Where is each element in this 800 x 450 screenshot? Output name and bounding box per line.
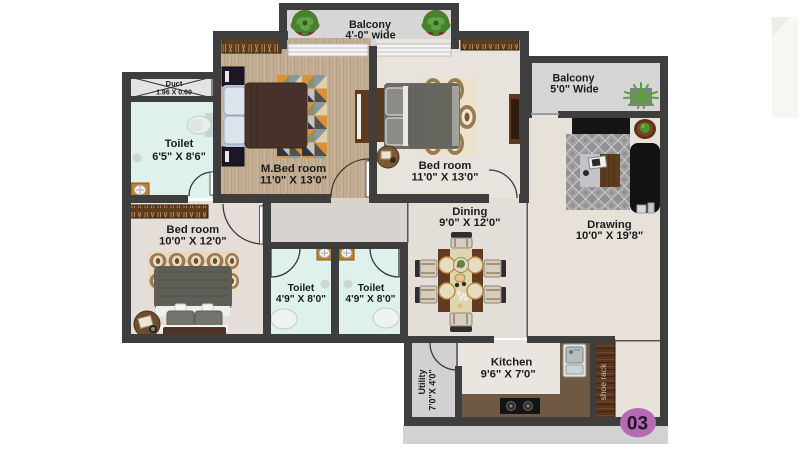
svg-text:9'6" X 7'0": 9'6" X 7'0" [481, 369, 536, 381]
svg-text:4'-0" wide: 4'-0" wide [345, 30, 395, 42]
svg-text:Toilet: Toilet [288, 283, 315, 294]
svg-text:5'0" Wide: 5'0" Wide [550, 83, 598, 95]
svg-text:11'0" X 13'0": 11'0" X 13'0" [260, 175, 327, 187]
svg-text:10'0" X 19'8": 10'0" X 19'8" [576, 230, 644, 242]
svg-text:1.96 X 0.60: 1.96 X 0.60 [156, 90, 192, 97]
svg-text:Toilet: Toilet [358, 283, 385, 294]
svg-text:Kitchen: Kitchen [491, 357, 533, 369]
svg-text:9'0" X 12'0": 9'0" X 12'0" [439, 217, 500, 229]
svg-text:Bed room: Bed room [166, 224, 219, 236]
svg-text:4'9" X 8'0": 4'9" X 8'0" [345, 294, 395, 305]
svg-text:10'0" X 12'0": 10'0" X 12'0" [159, 235, 227, 247]
svg-text:03: 03 [627, 414, 648, 435]
svg-text:Bed room: Bed room [419, 160, 472, 172]
svg-text:Utility: Utility [417, 369, 427, 394]
svg-text:Duct: Duct [166, 79, 183, 88]
svg-text:7'0"X 4'0": 7'0"X 4'0" [428, 369, 438, 410]
svg-text:4'9" X 8'0": 4'9" X 8'0" [276, 294, 326, 305]
svg-text:Toilet: Toilet [165, 138, 194, 150]
svg-text:M.Bed room: M.Bed room [261, 163, 326, 175]
svg-text:shoe rack: shoe rack [598, 363, 608, 401]
svg-text:11'0" X 13'0": 11'0" X 13'0" [412, 172, 479, 184]
svg-text:6'5" X 8'6": 6'5" X 8'6" [152, 151, 206, 163]
